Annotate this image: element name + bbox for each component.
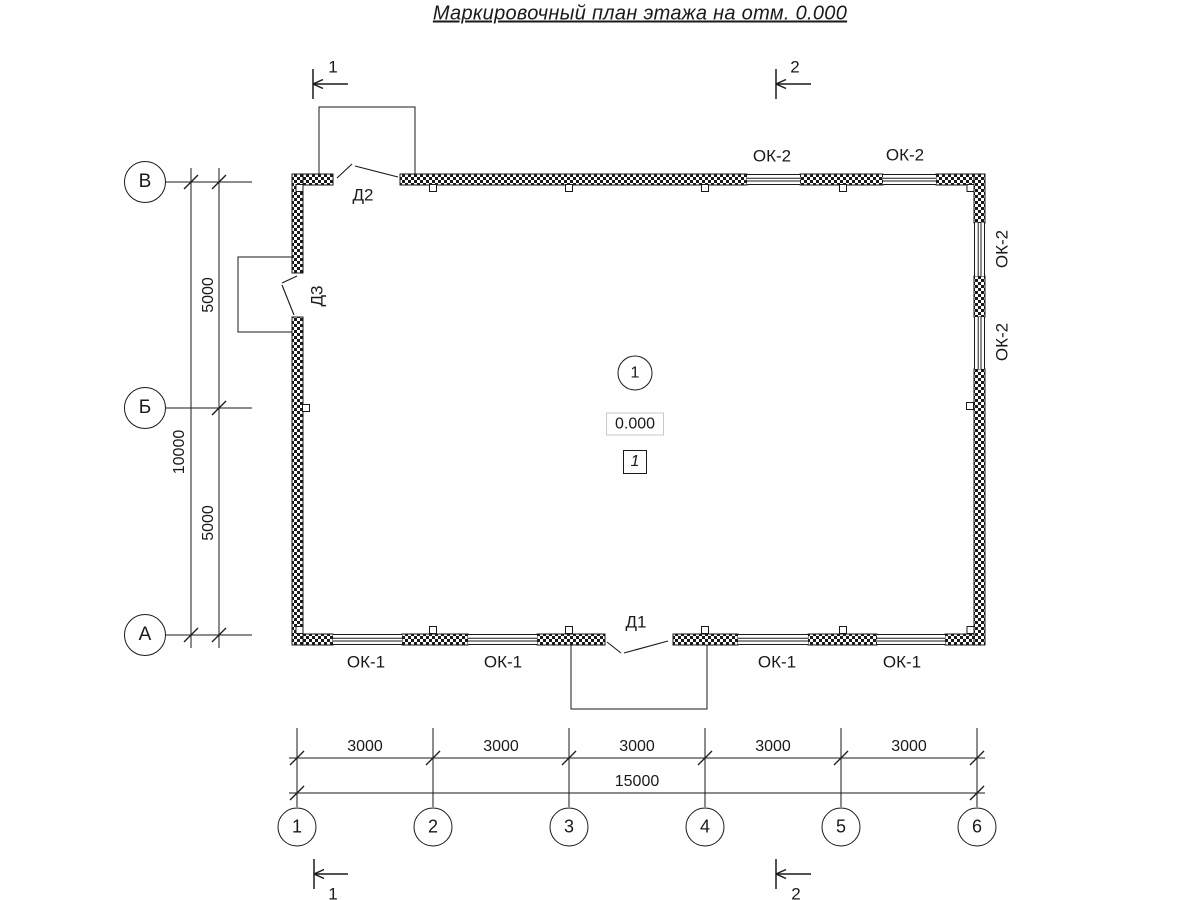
window-ok1-3 [738,634,808,645]
label-window-ok2-right-2: ОК-2 [994,323,1011,361]
windows-linework [333,174,985,645]
dim-bottom-3: 3000 [619,739,655,755]
window-ok2-top-1 [747,174,800,185]
wall-right-2 [974,276,985,317]
wall-top-2 [400,174,747,185]
room-number-bubble: 1 [618,356,653,391]
dim-bottom-5: 3000 [891,739,927,755]
left-dimension-system [166,168,252,648]
door-swing-d1 [607,641,668,653]
wall-bottom-2 [402,634,468,645]
window-ok1-2 [468,634,537,645]
dim-left-lower: 5000 [201,505,217,541]
label-window-ok1-2: ОК-1 [484,654,522,671]
porch-d1 [571,645,707,709]
label-window-ok2-top-1: ОК-2 [753,148,791,165]
wall-axis-notches [296,185,974,634]
label-section-top-1: 1 [328,59,337,76]
label-window-ok2-right-1: ОК-2 [994,230,1011,268]
wall-right-3 [974,369,985,645]
wall-bottom-5 [808,634,877,645]
axis-bubble-6: 6 [958,808,997,847]
window-ok1-1 [333,634,402,645]
wall-left-2 [292,317,303,645]
dim-bottom-total: 15000 [615,774,660,790]
wall-bottom-3 [537,634,605,645]
wall-top-3 [800,174,883,185]
dim-bottom-1: 3000 [347,739,383,755]
walls [292,174,985,645]
wall-bottom-4 [673,634,738,645]
room-number-box: 1 [623,450,647,474]
floor-plan-canvas: Маркировочный план этажа на отм. 0.000 В… [0,0,1200,900]
label-door-d1: Д1 [626,614,647,631]
dim-left-total: 10000 [172,430,188,475]
label-door-d2: Д2 [353,187,374,204]
axis-bubble-1: 1 [278,808,317,847]
door-swings [282,164,668,653]
label-door-d3: Д3 [309,286,326,307]
door-swing-d2 [337,164,398,178]
label-window-ok2-top-2: ОК-2 [886,147,924,164]
label-window-ok1-1: ОК-1 [347,654,385,671]
axis-bubble-v: В [124,161,166,203]
window-ok2-top-2 [883,174,936,185]
window-ok2-right-2 [974,317,985,369]
section-marks [313,69,811,889]
dim-bottom-2: 3000 [483,739,519,755]
label-section-bottom-1: 1 [328,886,337,900]
axis-bubble-3: 3 [550,808,589,847]
label-window-ok1-4: ОК-1 [883,654,921,671]
wall-right-1 [974,174,985,223]
label-window-ok1-3: ОК-1 [758,654,796,671]
dim-left-upper: 5000 [201,277,217,313]
axis-bubble-b: Б [124,387,166,429]
label-section-top-2: 2 [790,59,799,76]
window-ok1-4 [877,634,945,645]
door-swing-d3 [282,276,297,315]
drawing-title: Маркировочный план этажа на отм. 0.000 [433,3,847,26]
porch-d2 [319,107,415,174]
elevation-mark: 0.000 [606,413,664,436]
axis-bubble-5: 5 [822,808,861,847]
axis-bubble-4: 4 [686,808,725,847]
dim-bottom-4: 3000 [755,739,791,755]
axis-bubble-a: А [124,614,166,656]
label-section-bottom-2: 2 [791,886,800,900]
porch-d3 [238,257,292,332]
axis-bubble-2: 2 [414,808,453,847]
window-ok2-right-1 [974,223,985,276]
